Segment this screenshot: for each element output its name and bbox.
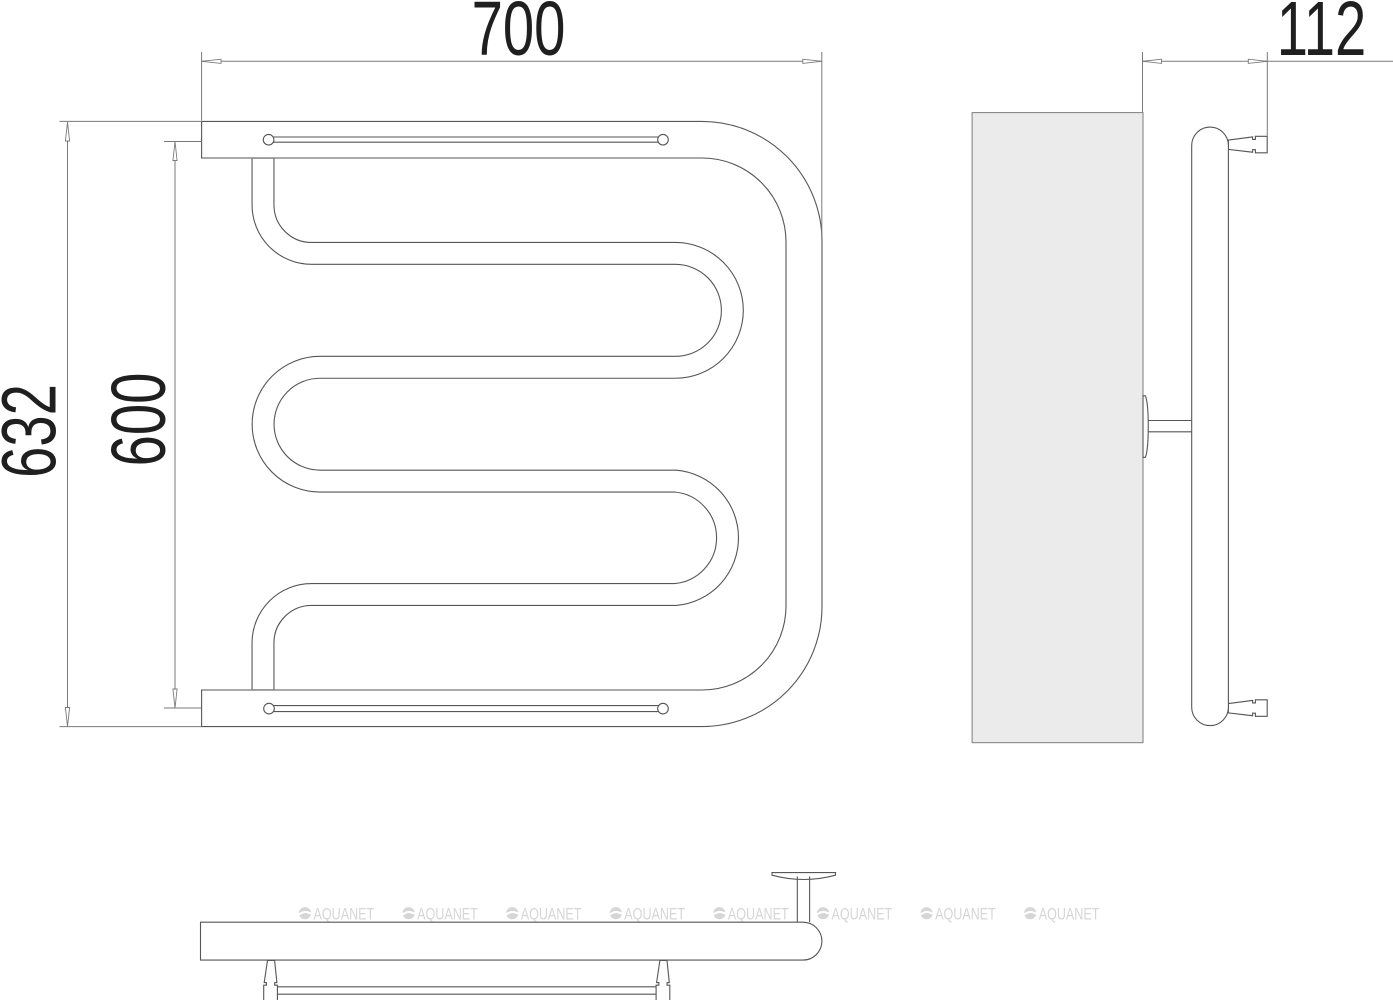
- svg-text:632: 632: [0, 384, 73, 478]
- svg-text:600: 600: [96, 373, 182, 467]
- svg-text:700: 700: [472, 0, 566, 72]
- svg-text:112: 112: [1277, 0, 1367, 72]
- svg-text:AQUANET: AQUANET: [314, 905, 375, 924]
